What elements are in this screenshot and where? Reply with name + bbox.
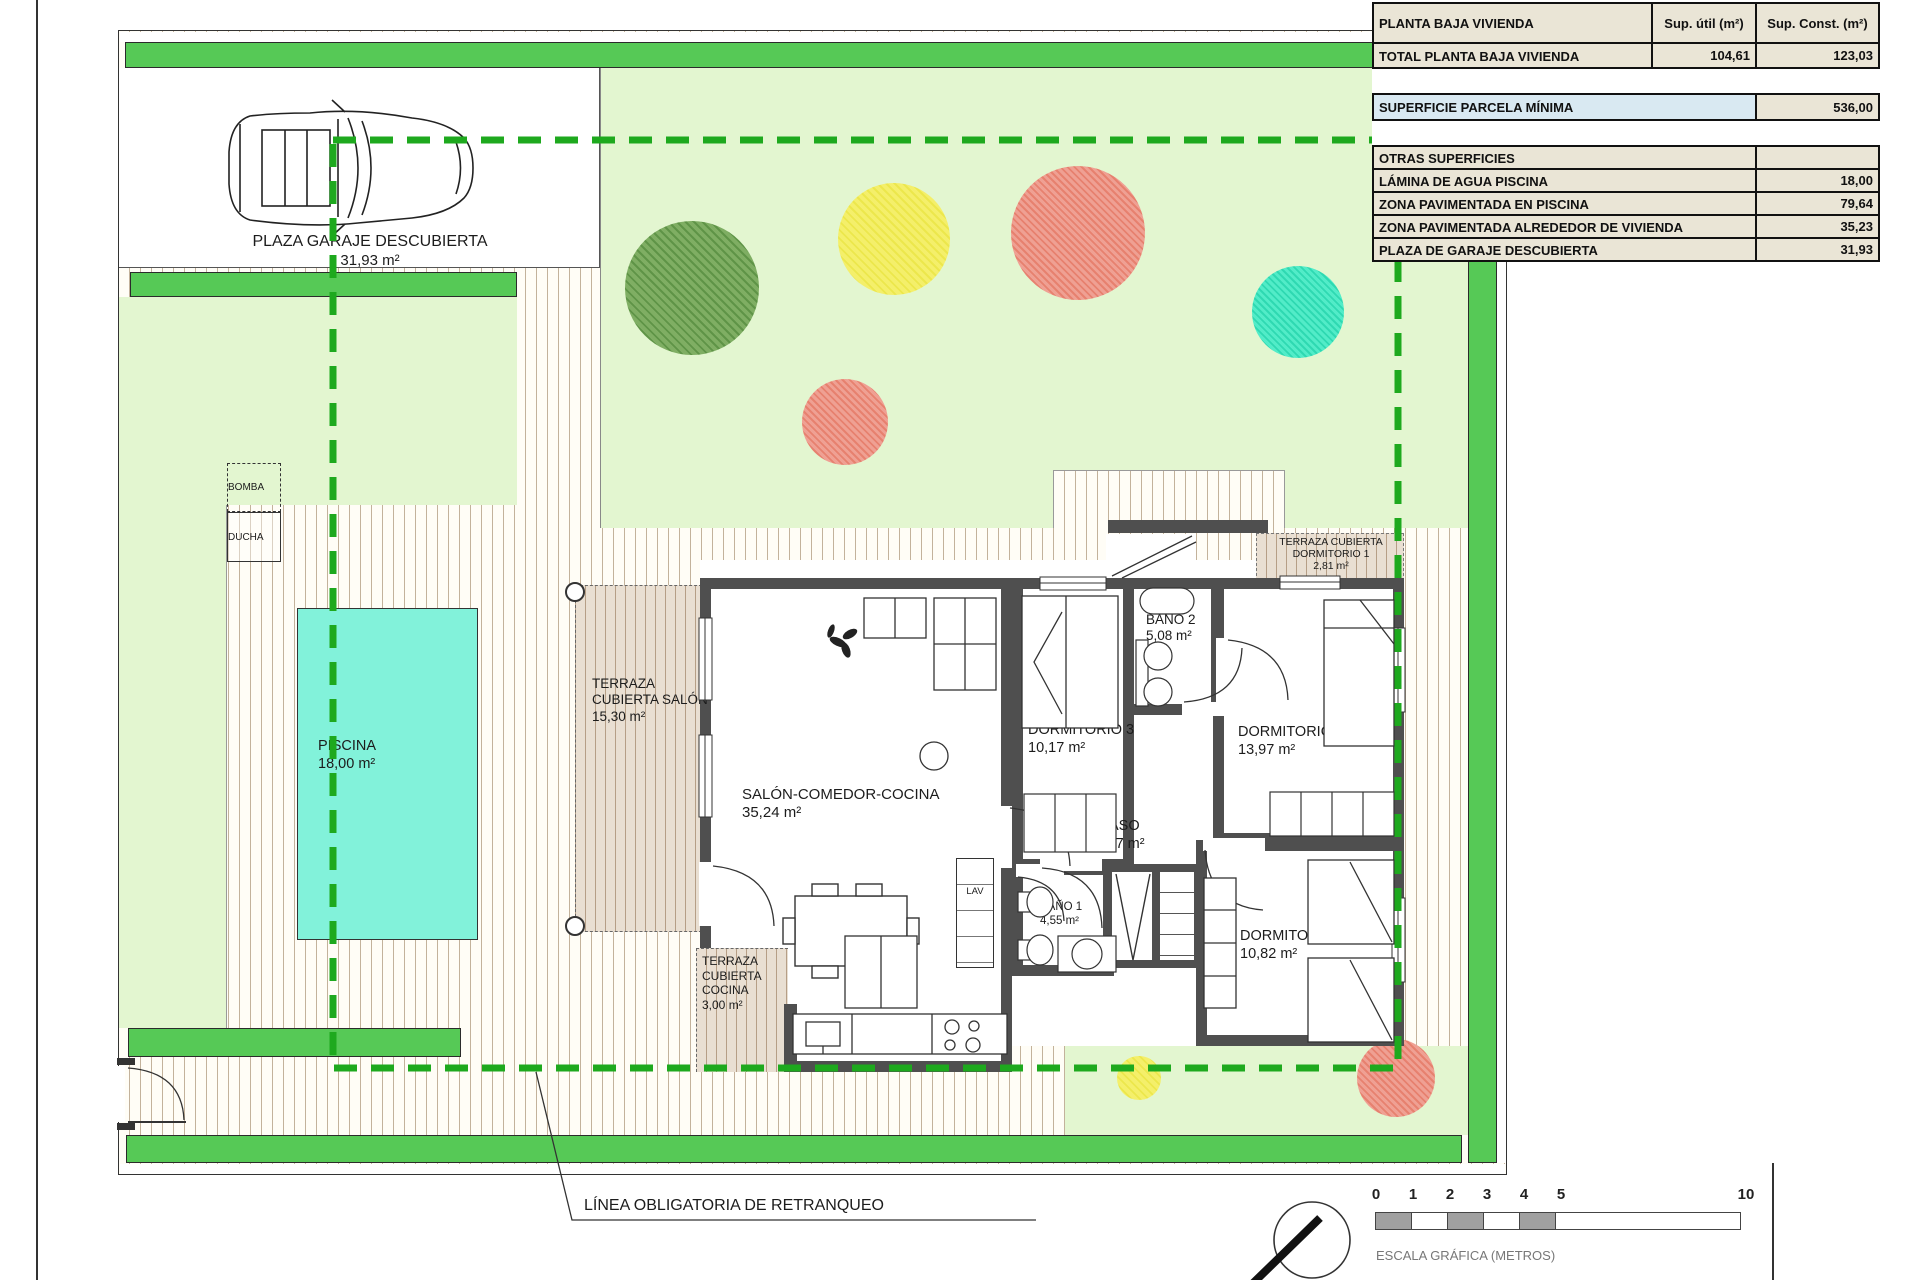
table-row-plaza-garaje: PLAZA DE GARAJE DESCUBIERTA 31,93 [1372,237,1880,262]
shower-label: DUCHA [228,532,264,543]
dorm3-name: DORMITORIO 3 [1028,722,1148,740]
terraza-salon-name: TERRAZA CUBIERTA SALÓN [592,676,708,709]
otras-title: OTRAS SUPERFICIES [1374,147,1755,168]
pool [297,608,478,940]
wall-top-right [1108,520,1268,533]
room-paso-label: PASO 3,67 m² [1072,818,1168,853]
paso-name: PASO [1072,818,1168,836]
salon-area: 35,24 m² [742,804,982,822]
room-salon-label: SALÓN-COMEDOR-COCINA 35,24 m² [742,786,982,823]
setback-text: LÍNEA OBLIGATORIA DE RETRANQUEO [584,1196,1054,1216]
garage-area-value: 31,93 m² [200,252,540,270]
bano2-area: 5,08 m² [1146,628,1226,644]
parcela-value: 536,00 [1755,95,1878,119]
tree-red-small-icon [802,379,888,465]
plaza-garaje-label: PLAZA DE GARAJE DESCUBIERTA [1374,239,1755,260]
otras-empty [1755,147,1878,168]
laundry-text: LAV [966,886,983,897]
sheet-left-border [36,0,38,1280]
room-dorm1-label: DORMITORIO 1 13,97 m² [1238,724,1388,759]
scale-seg [1411,1212,1448,1230]
lawn-left-upper [119,297,517,505]
zona-piscina-label: ZONA PAVIMENTADA EN PISCINA [1374,193,1755,214]
scale-caption: ESCALA GRÁFICA (METROS) [1376,1248,1696,1264]
terraza-salon-area: 15,30 m² [592,709,708,725]
scale-tick-3: 3 [1474,1186,1500,1203]
paso-area: 3,67 m² [1072,836,1168,854]
terraza-dorm1-name: TERRAZA CUBIERTA DORMITORIO 1 [1258,536,1404,560]
table-row-zona-piscina: ZONA PAVIMENTADA EN PISCINA 79,64 [1372,191,1880,216]
dorm2-name: DORMITORIO 2 [1240,928,1400,946]
pool-area-value: 18,00 m² [318,756,448,774]
tree-red-icon [1011,166,1145,300]
terrace-salon-deck [575,585,707,932]
tree-red-bottom-icon [1357,1039,1435,1117]
tree-yellow-bottom-icon [1117,1056,1161,1100]
pump-label: BOMBA [228,482,264,493]
laundry-closet [956,858,994,968]
lawn-left-strip [119,505,227,1028]
table-title: PLANTA BAJA VIVIENDA [1374,4,1651,42]
col-sup-util: Sup. útil (m²) [1651,4,1755,42]
tree-yellow-icon [838,183,950,295]
laundry-label: LAV [959,886,991,898]
room-dorm2-label: DORMITORIO 2 10,82 m² [1240,928,1400,963]
room-bano2 [1123,578,1222,715]
setback-annotation: LÍNEA OBLIGATORIA DE RETRANQUEO [584,1196,1054,1216]
green-band-top [125,42,1497,68]
table-spacer [1372,121,1880,147]
green-band-bottom [126,1135,1462,1163]
bano1-area: 4,55 m² [1040,914,1110,928]
areas-table: PLANTA BAJA VIVIENDA Sup. útil (m²) Sup.… [1372,2,1880,262]
green-band-mid-left [130,272,517,297]
parcel-top-margin [120,32,1505,42]
scale-seg [1375,1212,1412,1230]
pool-label: PISCINA 18,00 m² [318,738,448,773]
scale-tick-1: 1 [1400,1186,1426,1203]
lamina-value: 18,00 [1755,170,1878,191]
closet-shelves [1152,864,1202,968]
terrace-cocina-label: TERRAZA CUBIERTA COCINA 3,00 m² [702,954,784,1013]
parcel-bottom-margin [120,1164,1505,1174]
scale-tick-5: 5 [1548,1186,1574,1203]
dorm3-area: 10,17 m² [1028,740,1148,758]
parcela-label: SUPERFICIE PARCELA MÍNIMA [1374,95,1755,119]
scale-seg [1555,1212,1741,1230]
tree-teal-icon [1252,266,1344,358]
sheet-titleblock-divider [1772,1163,1774,1280]
total-const: 123,03 [1755,44,1878,67]
garage-label: PLAZA GARAJE DESCUBIERTA 31,93 m² [200,232,540,270]
dorm1-area: 13,97 m² [1238,742,1388,760]
scale-seg [1447,1212,1484,1230]
scale-tick-0: 0 [1363,1186,1389,1203]
green-band-bottom-left [128,1028,461,1057]
shower-box: DUCHA [227,512,281,562]
scale-caption-text: ESCALA GRÁFICA (METROS) [1376,1248,1696,1264]
bano1-name: BAÑO 1 [1040,900,1110,914]
table-spacer [1372,69,1880,95]
room-dorm3-label: DORMITORIO 3 10,17 m² [1028,722,1148,757]
terrace-dorm1-label: TERRAZA CUBIERTA DORMITORIO 1 2,81 m² [1258,536,1404,572]
lamina-label: LÁMINA DE AGUA PISCINA [1374,170,1755,191]
wall-kitchen-corner [784,1004,797,1072]
room-bano2-label: BAÑO 2 5,08 m² [1146,612,1226,645]
garage-name: PLAZA GARAJE DESCUBIERTA [200,232,540,252]
terrace-salon-label: TERRAZA CUBIERTA SALÓN 15,30 m² [592,676,708,725]
scale-tick-10: 10 [1733,1186,1759,1203]
dorm2-area: 10,82 m² [1240,946,1400,964]
scale-tick-2: 2 [1437,1186,1463,1203]
scale-seg [1483,1212,1520,1230]
table-parcela-row: SUPERFICIE PARCELA MÍNIMA 536,00 [1372,93,1880,121]
table-otras-header: OTRAS SUPERFICIES [1372,145,1880,170]
table-header-row: PLANTA BAJA VIVIENDA Sup. útil (m²) Sup.… [1372,2,1880,44]
scale-tick-4: 4 [1511,1186,1537,1203]
zona-vivienda-label: ZONA PAVIMENTADA ALREDEDOR DE VIVIENDA [1374,216,1755,237]
table-row-zona-vivienda: ZONA PAVIMENTADA ALREDEDOR DE VIVIENDA 3… [1372,214,1880,239]
scale-bar [1376,1212,1748,1230]
pump-box: BOMBA [227,463,281,512]
scale-seg [1519,1212,1556,1230]
terraza-cocina-area: 3,00 m² [702,998,784,1013]
pool-name: PISCINA [318,738,448,756]
bano2-name: BAÑO 2 [1146,612,1226,628]
north-arrow-icon [1246,1202,1350,1280]
total-label: TOTAL PLANTA BAJA VIVIENDA [1374,44,1651,67]
zona-piscina-value: 79,64 [1755,193,1878,214]
terraza-cocina-name: TERRAZA CUBIERTA COCINA [702,954,784,998]
table-total-row: TOTAL PLANTA BAJA VIVIENDA 104,61 123,03 [1372,42,1880,69]
terraza-dorm1-area: 2,81 m² [1258,560,1404,572]
dorm1-name: DORMITORIO 1 [1238,724,1388,742]
total-util: 104,61 [1651,44,1755,67]
salon-name: SALÓN-COMEDOR-COCINA [742,786,982,804]
table-row-lamina: LÁMINA DE AGUA PISCINA 18,00 [1372,168,1880,193]
zona-vivienda-value: 35,23 [1755,216,1878,237]
site-plan-sheet: PLAZA GARAJE DESCUBIERTA 31,93 m² PISCIN… [0,0,1920,1280]
room-dormitorio1 [1213,578,1404,844]
room-bano1-label: BAÑO 1 4,55 m² [1040,900,1110,928]
col-sup-const: Sup. Const. (m²) [1755,4,1878,42]
plaza-garaje-value: 31,93 [1755,239,1878,260]
tree-green-icon [625,221,759,355]
